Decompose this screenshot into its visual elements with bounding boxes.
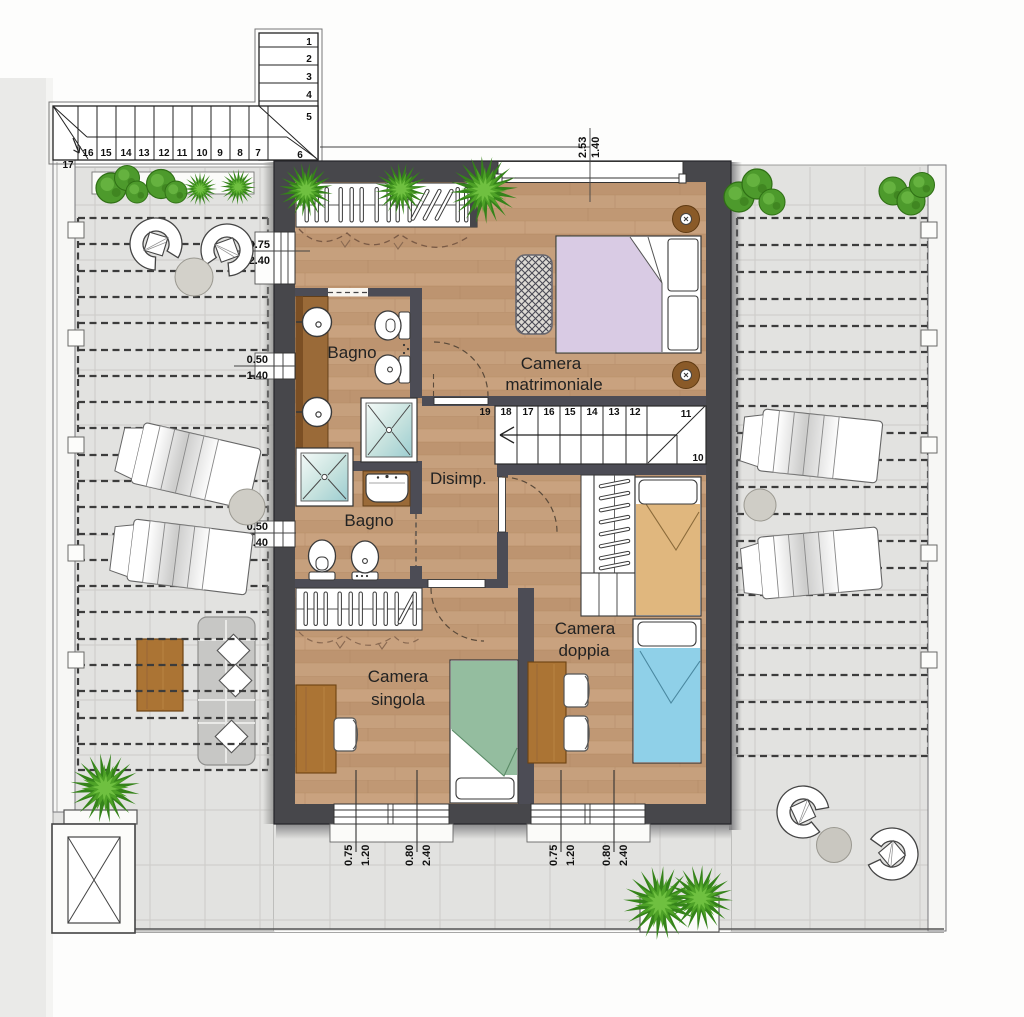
svg-text:16: 16 [543,407,555,418]
svg-text:16: 16 [82,148,94,159]
svg-text:2: 2 [306,54,312,65]
svg-text:2.40: 2.40 [421,845,433,866]
svg-text:15: 15 [564,407,576,418]
svg-text:9: 9 [217,148,223,159]
svg-text:12: 12 [629,407,641,418]
svg-text:10: 10 [692,453,704,464]
svg-text:14: 14 [586,407,598,418]
svg-text:2.53: 2.53 [577,137,589,158]
svg-text:2.40: 2.40 [618,845,630,866]
svg-text:15: 15 [100,148,112,159]
svg-text:14: 14 [120,148,132,159]
svg-text:19: 19 [479,407,491,418]
svg-text:1.20: 1.20 [360,845,372,866]
svg-text:1: 1 [306,37,312,48]
svg-text:1.40: 1.40 [247,370,268,382]
svg-text:5: 5 [306,112,312,123]
svg-text:0.50: 0.50 [247,354,268,366]
svg-text:Camera: Camera [521,354,582,373]
svg-text:11: 11 [177,148,188,159]
svg-text:17: 17 [62,160,74,171]
svg-text:12: 12 [158,148,170,159]
svg-text:13: 13 [608,407,620,418]
svg-text:11: 11 [681,409,692,420]
svg-text:18: 18 [500,407,512,418]
svg-text:8: 8 [237,148,243,159]
svg-text:0.75: 0.75 [548,845,560,866]
svg-text:singola: singola [371,690,425,709]
svg-text:doppia: doppia [558,641,610,660]
svg-text:10: 10 [196,148,208,159]
svg-text:Disimp.: Disimp. [430,469,487,488]
svg-text:0.80: 0.80 [601,845,613,866]
svg-text:1.20: 1.20 [565,845,577,866]
svg-text:3: 3 [306,72,312,83]
svg-text:0.80: 0.80 [404,845,416,866]
svg-text:Camera: Camera [368,667,429,686]
svg-text:4: 4 [306,90,312,101]
svg-text:matrimoniale: matrimoniale [505,375,602,394]
svg-text:1.40: 1.40 [590,137,602,158]
svg-text:7: 7 [255,148,261,159]
svg-text:Camera: Camera [555,619,616,638]
svg-text:6: 6 [297,150,303,161]
svg-text:Bagno: Bagno [344,511,393,530]
svg-text:Bagno: Bagno [327,343,376,362]
svg-text:13: 13 [138,148,150,159]
svg-text:0.75: 0.75 [343,845,355,866]
svg-text:17: 17 [522,407,534,418]
